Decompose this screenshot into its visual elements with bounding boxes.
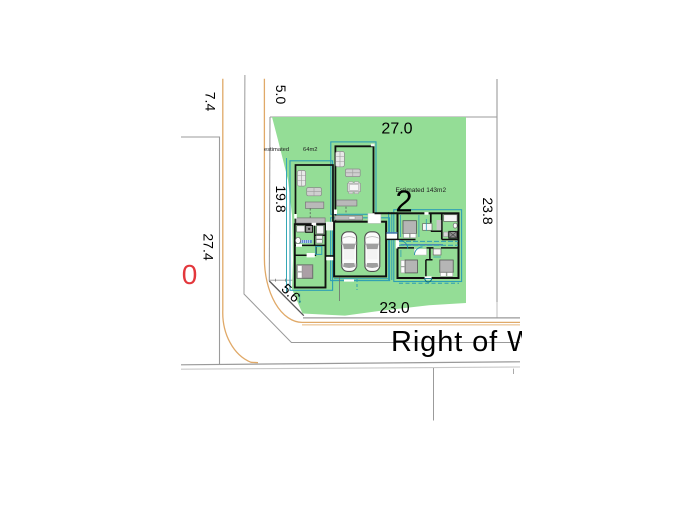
svg-text:estimated: estimated [264, 147, 289, 153]
svg-text:7.4: 7.4 [202, 92, 218, 112]
svg-text:23.0: 23.0 [379, 300, 410, 317]
svg-text:27.4: 27.4 [200, 233, 216, 260]
svg-text:5.0: 5.0 [273, 85, 289, 105]
svg-text:19.8: 19.8 [273, 185, 289, 212]
svg-text:64m2: 64m2 [303, 147, 318, 153]
svg-text:2: 2 [395, 184, 412, 219]
svg-text:0: 0 [182, 259, 198, 290]
svg-text:23.8: 23.8 [480, 197, 496, 224]
svg-text:27.0: 27.0 [381, 121, 412, 138]
